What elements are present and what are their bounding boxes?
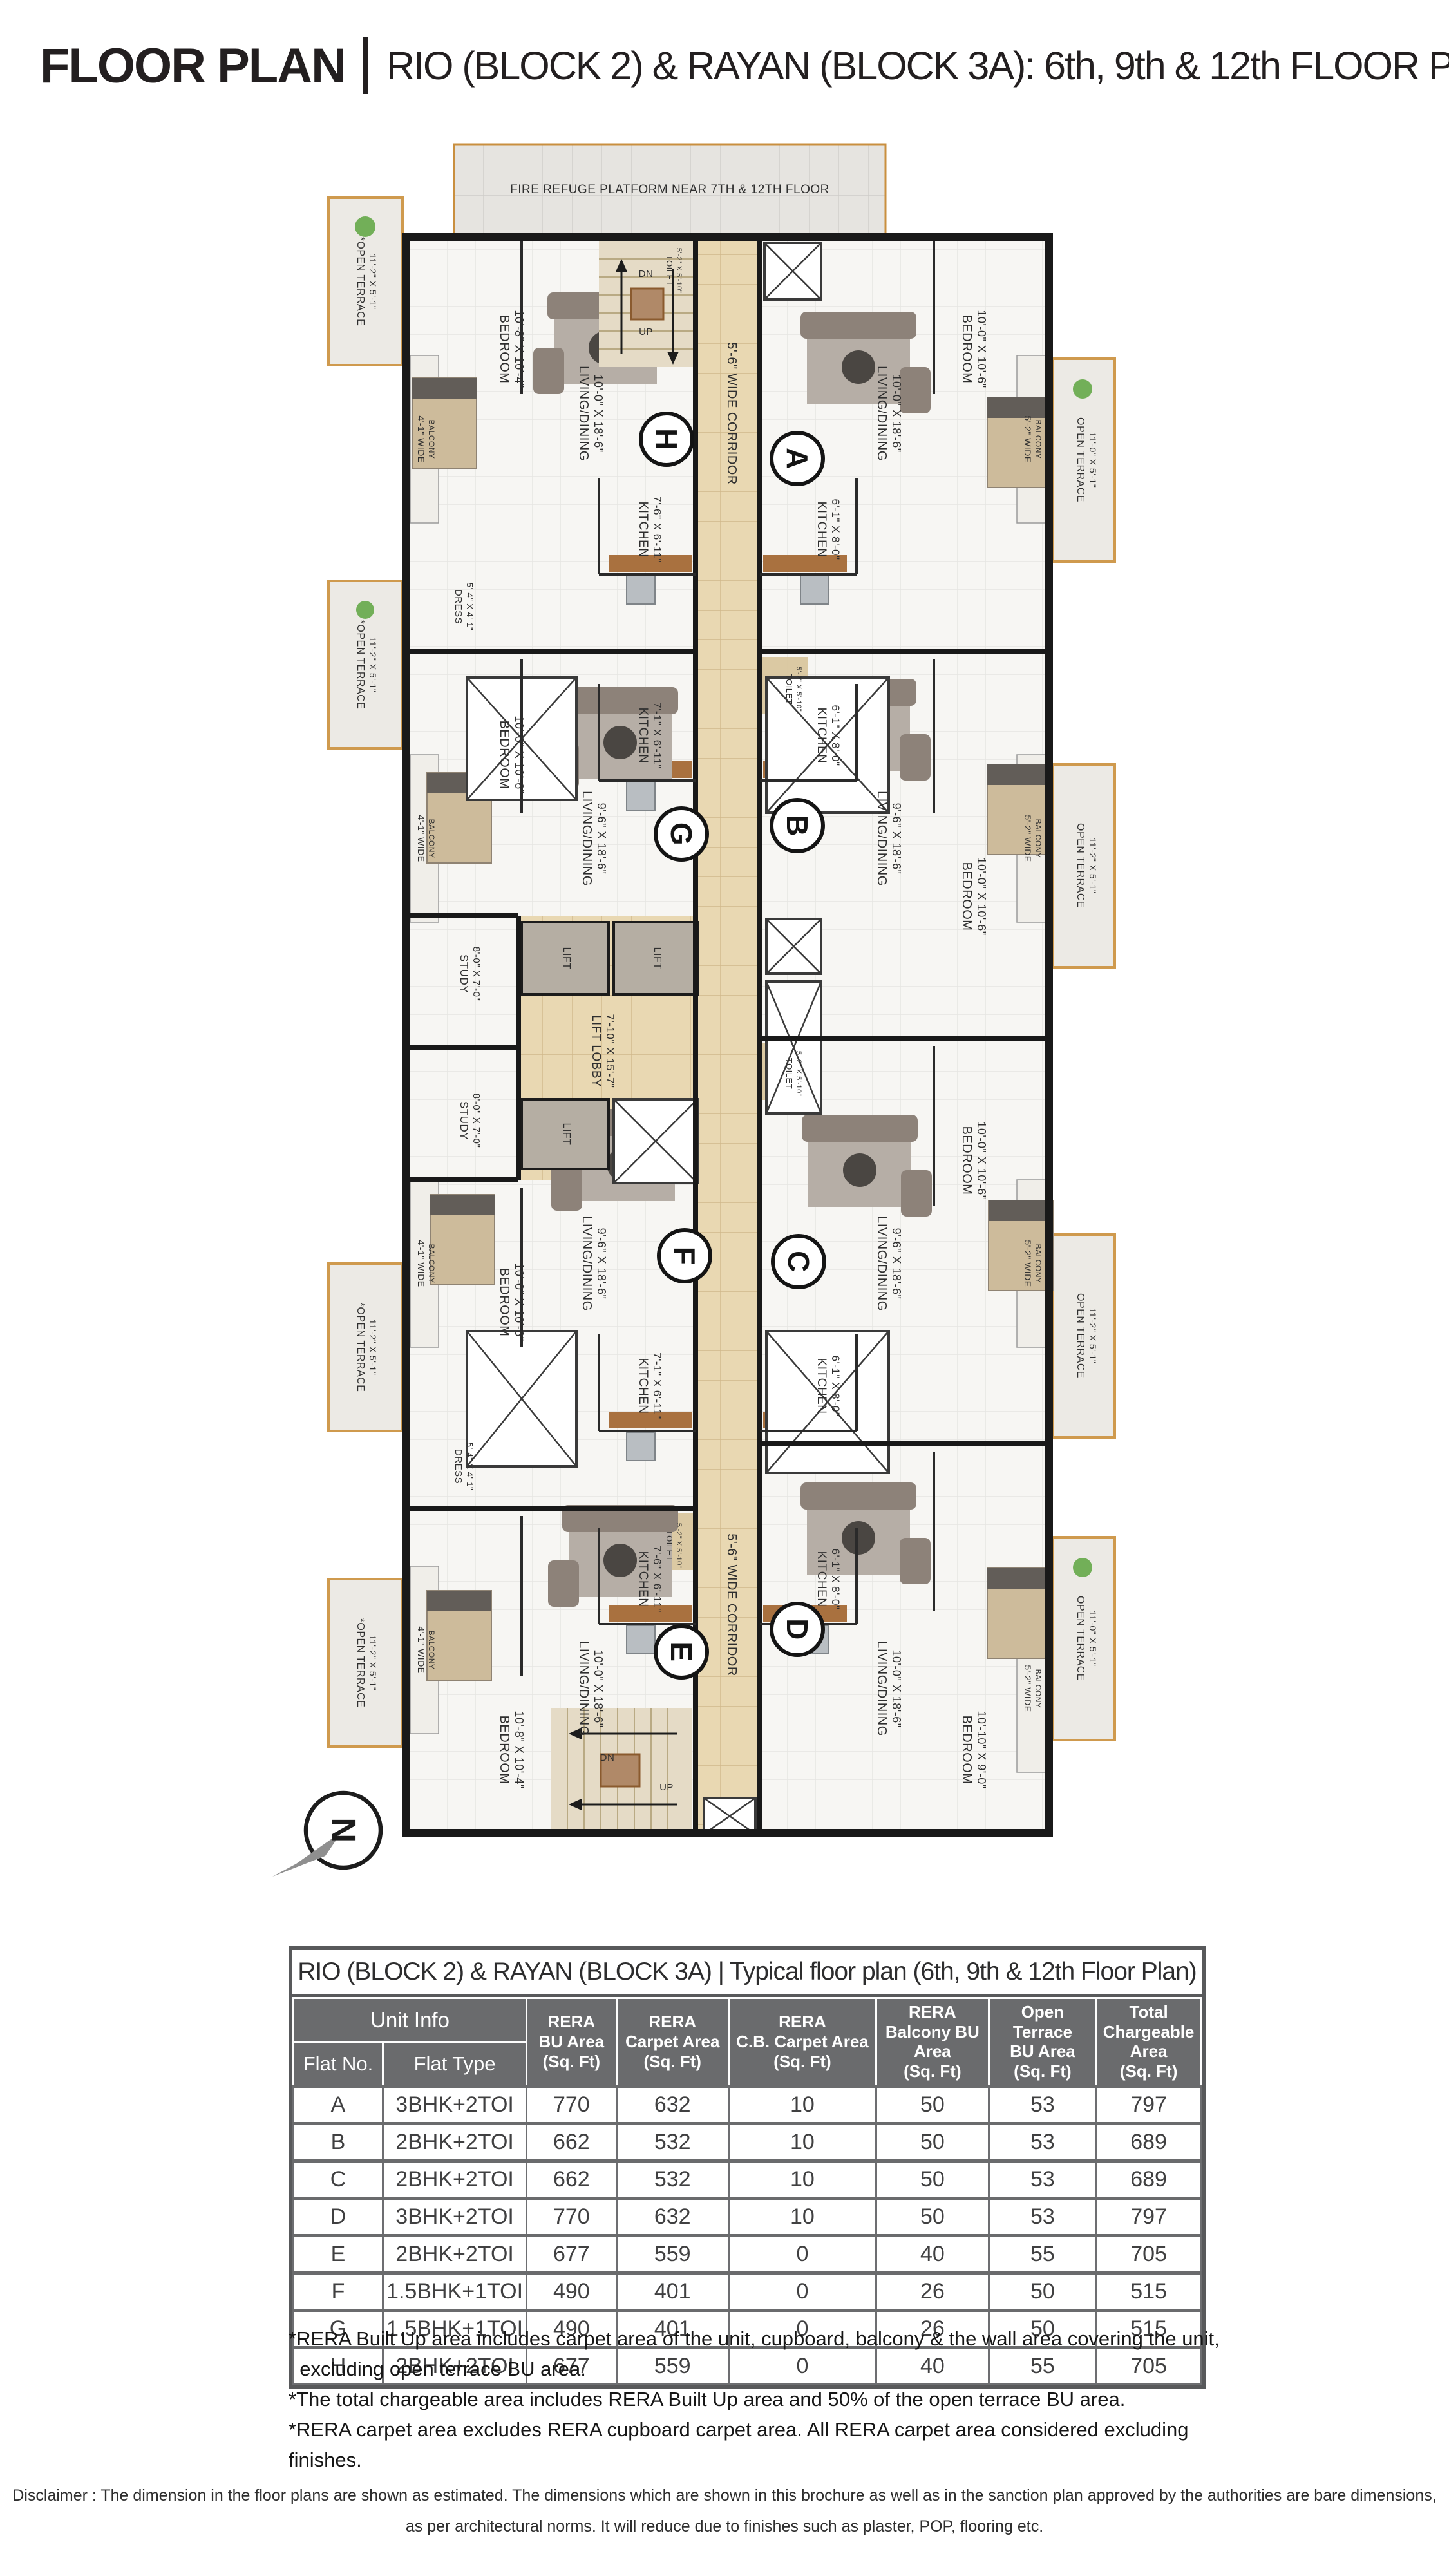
table-row: B2BHK+2TOI662532105053689	[294, 2123, 1201, 2161]
room-dims: 7'-6" X 6'-11"	[651, 1546, 663, 1613]
room-label: KITCHEN	[815, 708, 828, 764]
table-cell: 632	[616, 2086, 728, 2123]
room-label: UP	[659, 1782, 674, 1793]
room-label: BEDROOM	[960, 1716, 974, 1785]
room-dims: 5'-2" X 5'-10"	[675, 248, 683, 293]
table-cell: 1.5BHK+1TOI	[383, 2273, 527, 2310]
table-cell: 55	[989, 2235, 1097, 2273]
room-label: KITCHEN	[815, 502, 828, 558]
stove-icon	[627, 782, 655, 810]
page-subtitle: RIO (BLOCK 2) & RAYAN (BLOCK 3A): 6th, 9…	[386, 43, 1449, 88]
room-dims: 5'-2" X 5'-10"	[675, 1523, 683, 1568]
footnote: *RERA Built Up area includes carpet area…	[289, 2324, 1255, 2384]
room-dims: BALCONY	[1034, 1669, 1043, 1709]
room-dims: BALCONY	[427, 420, 436, 459]
table-cell: 662	[527, 2161, 617, 2198]
table-cell: 26	[876, 2273, 989, 2310]
table-cell: 53	[989, 2198, 1097, 2235]
room-label: *OPEN TERRACE	[355, 237, 366, 327]
room-label: 5'-2" WIDE	[1023, 1665, 1033, 1712]
room-dims: 10'-0" X 18'-6"	[592, 374, 605, 452]
stove-icon	[627, 1625, 655, 1654]
footnote: *The total chargeable area includes RERA…	[289, 2384, 1255, 2414]
room-label: 5'-6" WIDE CORRIDOR	[724, 342, 739, 485]
col-header-balcony-bu-area: RERA Balcony BU Area (Sq. Ft)	[876, 1998, 989, 2087]
room-label: OPEN TERRACE	[1075, 1596, 1086, 1681]
room-dims: 9'-6" X 18'-6"	[595, 1228, 608, 1300]
north-indicator: N	[261, 1766, 415, 1901]
col-header-cb-carpet-area: RERA C.B. Carpet Area (Sq. Ft)	[728, 1998, 876, 2087]
room-dims: 6'-1" X 8'-0"	[829, 1549, 842, 1610]
room-label: *OPEN TERRACE	[355, 1303, 366, 1392]
staircase-bottom	[551, 1708, 692, 1837]
room-dims: BALCONY	[1034, 1244, 1043, 1283]
floor-plan: FIRE REFUGE PLATFORM NEAR 7TH & 12TH FLO…	[306, 137, 1150, 1869]
table-cell: 532	[616, 2161, 728, 2198]
room-label: BEDROOM	[497, 1268, 511, 1337]
table-cell: B	[294, 2123, 383, 2161]
room-label: KITCHEN	[815, 1358, 828, 1414]
room-label: TOILET	[665, 255, 674, 286]
table-cell: 10	[728, 2086, 876, 2123]
room-dims: 5'-2" X 5'-10"	[795, 667, 802, 712]
table-cell: C	[294, 2161, 383, 2198]
table-cell: 797	[1097, 2198, 1201, 2235]
room-label: DN	[639, 269, 654, 279]
room-label: LIVING/DINING	[580, 1216, 594, 1311]
room-dims: 7'-1" X 6'-11"	[651, 702, 663, 769]
room-dims: 10'-0" X 10'-6"	[975, 1121, 988, 1199]
room-dims: 10'-0" X 18'-6"	[890, 374, 903, 452]
table-cell: 689	[1097, 2123, 1201, 2161]
floor-plan-svg: FIRE REFUGE PLATFORM NEAR 7TH & 12TH FLO…	[306, 137, 1150, 1869]
stove-icon	[627, 576, 655, 604]
room-label: 4'-1" WIDE	[416, 1626, 426, 1673]
room-dims: 6'-1" X 8'-0"	[829, 499, 842, 560]
plant-icon	[356, 601, 374, 619]
room-label: TOILET	[784, 1058, 794, 1089]
table-cell: 2BHK+2TOI	[383, 2161, 527, 2198]
room-dims: 11'-2" X 5'-1"	[368, 637, 378, 693]
room-label: 5'-2" WIDE	[1023, 415, 1033, 462]
room-label: DRESS	[453, 589, 464, 624]
room-label: BEDROOM	[960, 862, 974, 931]
room-label: LIVING/DINING	[576, 1641, 591, 1736]
room-dims: 11'-2" X 5'-1"	[368, 1320, 378, 1376]
table-cell: 0	[728, 2273, 876, 2310]
table-cell: 770	[527, 2086, 617, 2123]
room-dims: 9'-6" X 18'-6"	[890, 1228, 903, 1300]
room-label: LIVING/DINING	[580, 791, 594, 886]
room-dims: BALCONY	[427, 819, 436, 858]
room-label: OPEN TERRACE	[1075, 823, 1086, 908]
room-label: BEDROOM	[497, 315, 511, 384]
room-label: DRESS	[453, 1449, 464, 1484]
room-label: KITCHEN	[815, 1551, 828, 1607]
table-cell: 797	[1097, 2086, 1201, 2123]
room-dims: 5'-2" X 5'-10"	[795, 1051, 802, 1096]
table-cell: 3BHK+2TOI	[383, 2198, 527, 2235]
kitchen-counter	[609, 1605, 692, 1622]
area-table: RIO (BLOCK 2) & RAYAN (BLOCK 3A) | Typic…	[289, 1946, 1206, 2389]
unit-letter-E: E	[665, 1642, 698, 1662]
room-label: LIVING/DINING	[875, 1216, 889, 1311]
room-dims: 7'-6" X 6'-11"	[651, 496, 663, 563]
table-row: D3BHK+2TOI770632105053797	[294, 2198, 1201, 2235]
room-dims: 9'-6" X 18'-6"	[890, 803, 903, 875]
table-cell: 401	[616, 2273, 728, 2310]
table-cell: 50	[876, 2161, 989, 2198]
table-cell: 3BHK+2TOI	[383, 2086, 527, 2123]
unit-letter-C: C	[782, 1251, 815, 1273]
stove-icon	[800, 576, 829, 604]
room-dims: 11'-2" X 5'-1"	[368, 1635, 378, 1691]
room-label: KITCHEN	[636, 1551, 650, 1607]
room-dims: 8'-0" X 7'-0"	[471, 1094, 482, 1148]
unit-letter-G: G	[665, 822, 698, 846]
room-dims: BALCONY	[1034, 819, 1043, 858]
footnote: *RERA carpet area excludes RERA cupboard…	[289, 2414, 1255, 2475]
room-label: 5'-2" WIDE	[1023, 1240, 1033, 1287]
room-label: TOILET	[665, 1530, 674, 1561]
room-dims: 10'-0" X 10'-6"	[975, 857, 988, 935]
table-cell: 2BHK+2TOI	[383, 2123, 527, 2161]
room-dims: 6'-1" X 8'-0"	[829, 705, 842, 766]
title-divider-bar	[363, 37, 368, 94]
room-dims: 10'-10" X 9'-0"	[975, 1710, 988, 1788]
room-dims: 10'-0" X 10'-6"	[513, 715, 526, 793]
room-dims: 10'-0" X 10'-6"	[513, 1263, 526, 1341]
table-cell: 53	[989, 2086, 1097, 2123]
north-label: N	[324, 1817, 363, 1843]
col-header-flat-type: Flat Type	[383, 2043, 527, 2086]
table-cell: 53	[989, 2123, 1097, 2161]
col-header-open-terrace-bu-area: Open Terrace BU Area (Sq. Ft)	[989, 1998, 1097, 2087]
room-dims: 11'-0" X 5'-1"	[1088, 1611, 1098, 1667]
room-dims: BALCONY	[427, 1244, 436, 1283]
room-label: 5'-6" WIDE CORRIDOR	[724, 1533, 739, 1676]
room-dims: 9'-6" X 18'-6"	[595, 803, 608, 875]
page-header: FLOOR PLAN RIO (BLOCK 2) & RAYAN (BLOCK …	[40, 37, 1412, 94]
room-label: *OPEN TERRACE	[355, 620, 366, 710]
col-header-total-chargeable-area: Total Chargeable Area (Sq. Ft)	[1097, 1998, 1201, 2087]
table-cell: 53	[989, 2161, 1097, 2198]
table-cell: 689	[1097, 2161, 1201, 2198]
room-dims: 10'-0" X 10'-6"	[975, 310, 988, 388]
footnotes: *RERA Built Up area includes carpet area…	[289, 2324, 1255, 2476]
room-label: STUDY	[458, 954, 470, 993]
room-label: STUDY	[458, 1101, 470, 1140]
room-dims: BALCONY	[1034, 420, 1043, 459]
room-dims: 8'-0" X 7'-0"	[471, 947, 482, 1001]
room-dims: 11'-2" X 5'-1"	[1088, 838, 1098, 894]
table-cell: D	[294, 2198, 383, 2235]
table-cell: 10	[728, 2123, 876, 2161]
table-cell: 10	[728, 2198, 876, 2235]
col-header-unit-info: Unit Info	[294, 1998, 527, 2043]
disclaimer: Disclaimer : The dimension in the floor …	[0, 2481, 1449, 2542]
room-dims: 7'-1" X 6'-11"	[651, 1352, 663, 1419]
room-label: LIVING/DINING	[875, 366, 889, 461]
room-dims: 5'-4" X 4'-1"	[465, 1443, 475, 1490]
room-dims: 10'-8" X 10'-4"	[513, 310, 526, 388]
room-label: LIFT	[561, 947, 572, 970]
table-row: F1.5BHK+1TOI49040102650515	[294, 2273, 1201, 2310]
table-row: C2BHK+2TOI662532105053689	[294, 2161, 1201, 2198]
table-row: E2BHK+2TOI67755904055705	[294, 2235, 1201, 2273]
table-cell: 50	[876, 2198, 989, 2235]
stove-icon	[627, 1432, 655, 1461]
table-cell: 490	[527, 2273, 617, 2310]
room-label: LIVING/DINING	[576, 366, 591, 461]
room-label: KITCHEN	[636, 1358, 650, 1414]
table-cell: 632	[616, 2198, 728, 2235]
table-cell: E	[294, 2235, 383, 2273]
room-dims: 6'-1" X 8'-0"	[829, 1356, 842, 1417]
table-row: A3BHK+2TOI770632105053797	[294, 2086, 1201, 2123]
room-dims: 11'-2" X 5'-1"	[1088, 1308, 1098, 1364]
table-cell: 677	[527, 2235, 617, 2273]
room-dims: 10'-8" X 10'-4"	[513, 1710, 526, 1788]
room-label: KITCHEN	[636, 502, 650, 558]
room-label: BEDROOM	[960, 1126, 974, 1195]
room-label: FIRE REFUGE PLATFORM NEAR 7TH & 12TH FLO…	[510, 183, 829, 196]
room-dims: 5'-4" X 4'-1"	[465, 583, 475, 630]
unit-letter-B: B	[781, 815, 814, 837]
table-cell: 0	[728, 2235, 876, 2273]
table-cell: 532	[616, 2123, 728, 2161]
table-cell: 2BHK+2TOI	[383, 2235, 527, 2273]
room-dims: 11'-2" X 5'-1"	[368, 254, 378, 310]
room-label: LIVING/DINING	[875, 1641, 889, 1736]
table-cell: 40	[876, 2235, 989, 2273]
room-label: *OPEN TERRACE	[355, 1618, 366, 1708]
room-label: 4'-1" WIDE	[416, 1240, 426, 1287]
room-label: OPEN TERRACE	[1075, 417, 1086, 502]
room-label: 4'-1" WIDE	[416, 415, 426, 462]
col-header-carpet-area: RERA Carpet Area (Sq. Ft)	[616, 1998, 728, 2087]
room-dims: 7'-10" X 15'-7"	[604, 1014, 616, 1088]
room-label: KITCHEN	[636, 708, 650, 764]
plant-icon	[355, 216, 375, 237]
room-dims: BALCONY	[427, 1631, 436, 1670]
kitchen-counter	[609, 1412, 692, 1428]
room-label: LIFT	[561, 1123, 572, 1146]
room-label: BEDROOM	[960, 315, 974, 384]
unit-letter-D: D	[781, 1618, 814, 1640]
table-cell: 662	[527, 2123, 617, 2161]
kitchen-counter	[609, 555, 692, 572]
table-cell: F	[294, 2273, 383, 2310]
table-title: RIO (BLOCK 2) & RAYAN (BLOCK 3A) | Typic…	[292, 1950, 1202, 1997]
table-cell: 705	[1097, 2235, 1201, 2273]
col-header-flat-no: Flat No.	[294, 2043, 383, 2086]
table-cell: 10	[728, 2161, 876, 2198]
plant-icon	[1073, 379, 1092, 399]
table-cell: 50	[876, 2123, 989, 2161]
room-dims: 10'-0" X 18'-6"	[592, 1649, 605, 1727]
room-dims: 11'-0" X 5'-1"	[1088, 432, 1098, 488]
table-cell: 559	[616, 2235, 728, 2273]
room-label: 4'-1" WIDE	[416, 815, 426, 862]
unit-letter-A: A	[781, 448, 814, 469]
table-cell: A	[294, 2086, 383, 2123]
table-cell: 770	[527, 2198, 617, 2235]
room-label: 5'-2" WIDE	[1023, 815, 1033, 862]
room-label: BEDROOM	[497, 721, 511, 790]
table-cell: 50	[876, 2086, 989, 2123]
room-label: DN	[600, 1752, 615, 1763]
room-label: TOILET	[784, 674, 794, 705]
room-label: OPEN TERRACE	[1075, 1293, 1086, 1378]
unit-letter-H: H	[650, 428, 683, 450]
page-title: FLOOR PLAN	[40, 38, 345, 94]
room-label: LIFT	[652, 947, 663, 970]
col-header-bu-area: RERA BU Area (Sq. Ft)	[527, 1998, 617, 2087]
room-label: LIVING/DINING	[875, 791, 889, 886]
room-label: LIFT LOBBY	[589, 1015, 603, 1087]
table-cell: 515	[1097, 2273, 1201, 2310]
room-label: BEDROOM	[497, 1716, 511, 1785]
room-label: UP	[639, 327, 653, 337]
table-cell: 50	[989, 2273, 1097, 2310]
plant-icon	[1073, 1558, 1092, 1577]
unit-letter-F: F	[668, 1247, 701, 1265]
brochure-page: FLOOR PLAN RIO (BLOCK 2) & RAYAN (BLOCK …	[0, 0, 1449, 2576]
room-dims: 10'-0" X 18'-6"	[890, 1649, 903, 1727]
